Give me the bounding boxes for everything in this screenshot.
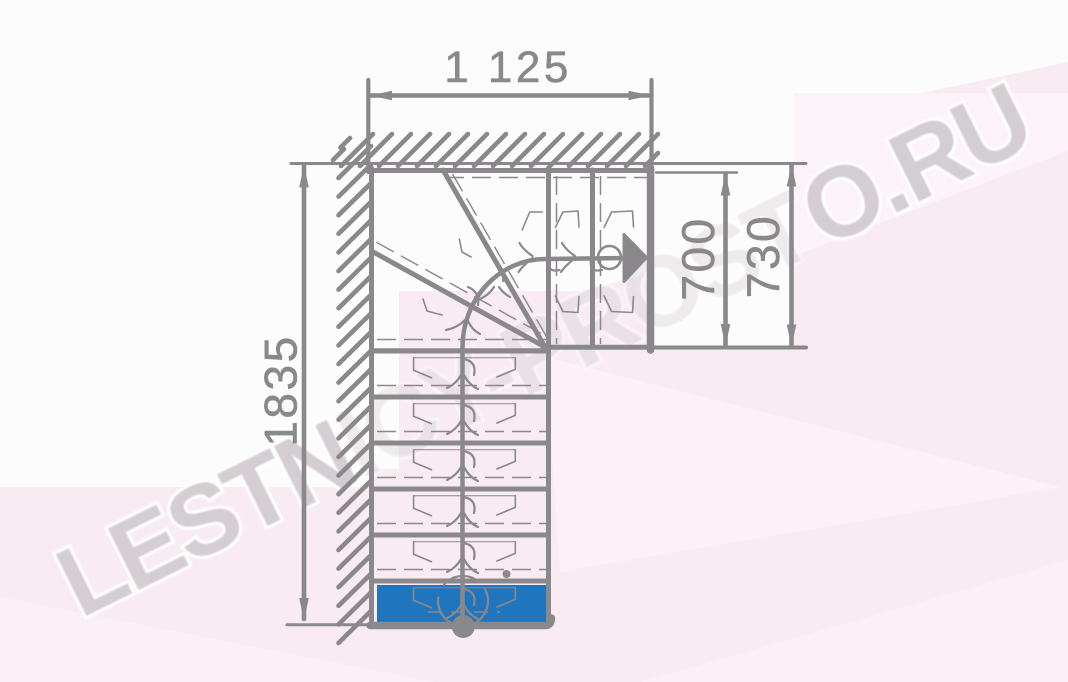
svg-text:700: 700	[672, 216, 724, 300]
svg-text:1 125: 1 125	[444, 43, 572, 92]
svg-text:1835: 1835	[255, 334, 307, 446]
svg-text:730: 730	[737, 214, 789, 298]
